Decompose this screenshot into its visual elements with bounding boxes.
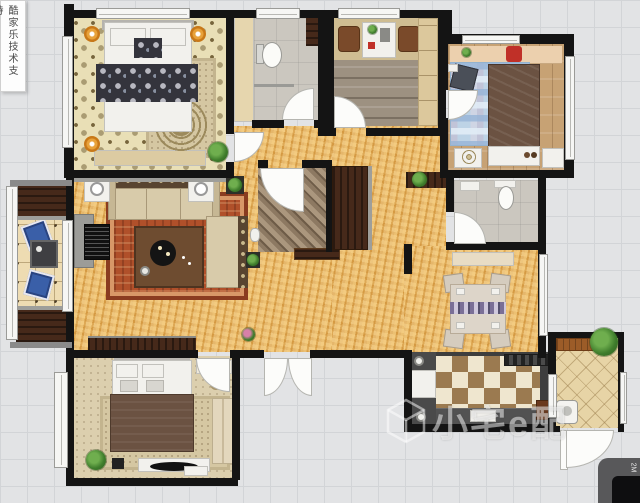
study-wardrobe	[418, 18, 438, 126]
counter-appliance	[470, 410, 496, 422]
closet	[234, 16, 254, 122]
wall	[548, 332, 556, 374]
bed-bench	[96, 64, 198, 102]
wall-face	[74, 178, 226, 182]
laptop	[380, 28, 390, 42]
pillow	[116, 364, 138, 378]
floorplan-canvas[interactable]: 酷家乐技术支持 小宅e配 2M	[0, 0, 640, 503]
doll	[531, 152, 537, 158]
place-setting	[456, 288, 465, 295]
window	[565, 56, 575, 160]
wall	[314, 120, 328, 128]
window	[462, 35, 520, 44]
nightstand	[542, 148, 564, 168]
sink	[460, 181, 480, 191]
wall	[310, 350, 410, 358]
wall	[318, 10, 334, 136]
doll	[524, 152, 530, 158]
heater-unit	[184, 466, 208, 476]
wall	[404, 244, 412, 274]
serving-tray	[150, 240, 176, 266]
planter-plant	[247, 254, 259, 266]
table-speck	[182, 256, 185, 259]
potted-plant	[86, 450, 106, 470]
corner-control-label: 2M	[630, 463, 637, 473]
table-speck	[188, 262, 191, 265]
small-item	[448, 64, 458, 72]
flower-pot	[242, 328, 255, 341]
sideboard	[452, 252, 514, 266]
balcony-slider-window	[62, 220, 73, 312]
corner-control[interactable]: 2M	[598, 458, 640, 503]
corner-lamp	[84, 136, 100, 152]
wall	[538, 178, 546, 252]
accent-pillow	[146, 380, 164, 392]
desk-plant	[462, 48, 471, 57]
cabinet-edge	[16, 306, 66, 310]
accent-pillow	[120, 380, 138, 392]
kitchen-sink	[414, 356, 424, 366]
tray-item	[158, 246, 162, 250]
wall	[404, 424, 556, 432]
patio-door-left	[264, 358, 288, 396]
low-cabinet	[94, 150, 206, 166]
wall	[440, 170, 572, 178]
table-runner	[450, 302, 506, 314]
planter-plant	[228, 178, 242, 192]
entry-wardrobe	[332, 166, 368, 250]
side-watermark: 酷家乐技术支持	[0, 0, 26, 92]
teacup	[36, 246, 42, 252]
wall	[440, 118, 448, 178]
wall	[74, 350, 198, 358]
corner-lamp	[84, 26, 100, 42]
wall	[232, 356, 240, 480]
bed-runner	[134, 38, 162, 58]
desk	[362, 22, 396, 58]
wall	[366, 128, 446, 136]
wall	[440, 38, 448, 90]
tv	[84, 224, 110, 260]
balcony-cap	[10, 342, 72, 348]
wall	[404, 350, 412, 428]
tea-table	[30, 240, 58, 268]
wall	[326, 160, 332, 252]
table-lamp	[194, 182, 208, 196]
window	[620, 372, 627, 424]
place-setting	[491, 322, 500, 329]
shelf-plant	[412, 172, 427, 187]
kitchen-sink	[416, 412, 426, 422]
table-lamp	[90, 182, 104, 196]
window	[96, 8, 190, 19]
balcony-cabinet	[16, 308, 66, 342]
window	[256, 8, 300, 19]
toilet-bowl	[498, 186, 514, 210]
desk-plant	[368, 25, 377, 34]
shower-partition	[254, 84, 294, 87]
window	[6, 186, 18, 340]
balcony-door-window	[548, 374, 557, 418]
master-wardrobe	[212, 398, 234, 464]
wall	[258, 160, 268, 168]
place-setting	[456, 322, 465, 329]
cabinet-edge	[16, 216, 66, 220]
study-chair	[398, 26, 420, 52]
patio-door-right	[288, 358, 312, 396]
wall	[226, 10, 234, 134]
sofa-cushion-seam	[180, 188, 181, 220]
wall	[548, 426, 560, 432]
tray-item	[166, 252, 170, 256]
pillow	[142, 364, 164, 378]
wall	[66, 478, 238, 486]
wall	[230, 350, 264, 358]
master-blanket	[110, 394, 194, 452]
window	[54, 372, 68, 468]
console-cabinet	[88, 336, 196, 351]
floor-vase	[250, 228, 260, 242]
balcony-plant	[590, 328, 618, 356]
study-chair	[338, 26, 360, 52]
nightstand-decor	[462, 150, 476, 164]
place-setting	[491, 288, 500, 295]
wall	[64, 170, 226, 178]
sofa-cushion-seam	[146, 188, 147, 220]
wall	[226, 162, 234, 178]
chaise-sofa	[206, 216, 240, 288]
wall	[446, 178, 454, 212]
desk-accessory	[368, 42, 375, 49]
balcony-cabinet	[16, 186, 66, 218]
wall	[252, 120, 284, 128]
bed2-blanket	[488, 64, 540, 148]
fridge	[410, 370, 436, 398]
window	[62, 36, 73, 148]
washer-door	[562, 406, 572, 416]
wall	[326, 128, 336, 136]
red-chair	[506, 46, 522, 62]
balcony-cap	[10, 180, 72, 186]
corner-control-inner	[612, 476, 640, 503]
toilet-bowl	[262, 42, 282, 68]
window	[338, 8, 400, 19]
potted-plant	[208, 142, 228, 162]
window	[539, 254, 548, 336]
corner-lamp	[190, 26, 206, 42]
speaker-box	[112, 458, 124, 469]
saucer	[140, 266, 150, 276]
wardrobe-edge	[368, 166, 372, 250]
